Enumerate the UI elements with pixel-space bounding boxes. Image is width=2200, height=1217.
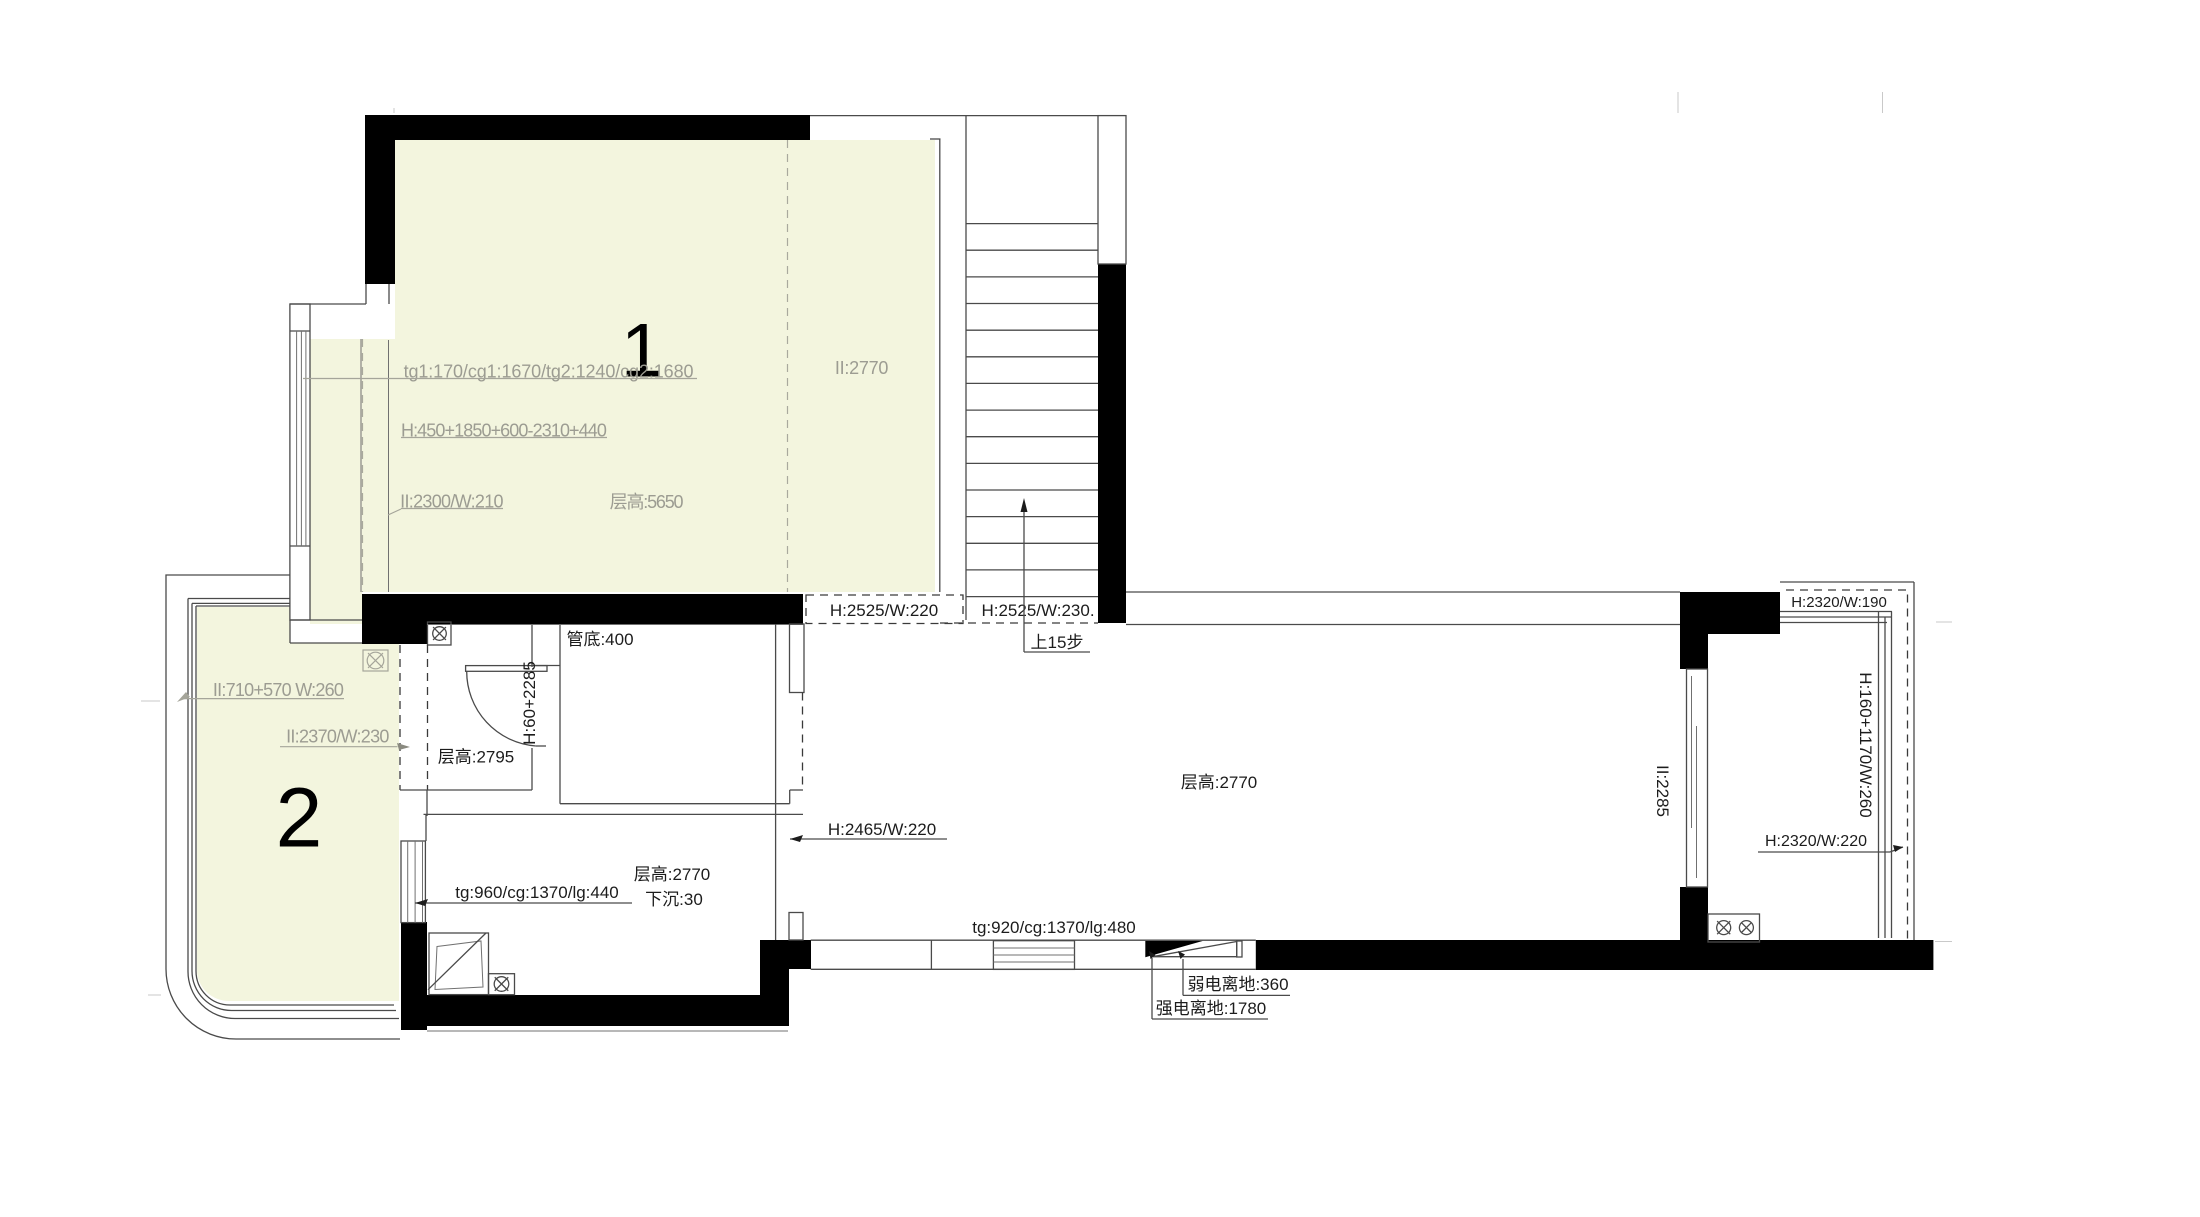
svg-text:II:2770: II:2770 xyxy=(835,358,889,378)
svg-text:H:60+2285: H:60+2285 xyxy=(520,661,539,745)
svg-text:层高:5650: 层高:5650 xyxy=(610,492,684,512)
svg-text:层高:2795: 层高:2795 xyxy=(438,748,515,767)
svg-text:H:2525/W:220: H:2525/W:220 xyxy=(830,601,938,620)
svg-text:H:2465/W:220: H:2465/W:220 xyxy=(828,820,936,839)
svg-text:2: 2 xyxy=(276,771,323,865)
svg-text:上15步: 上15步 xyxy=(1031,633,1084,652)
svg-text:层高:2770: 层高:2770 xyxy=(1181,773,1258,792)
svg-text:层高:2770: 层高:2770 xyxy=(634,865,711,884)
svg-text:H:2320/W:190: H:2320/W:190 xyxy=(1791,594,1887,611)
svg-text:II:2285: II:2285 xyxy=(1653,765,1672,817)
svg-text:II:2370/W:230: II:2370/W:230 xyxy=(286,727,389,747)
svg-text:tg:920/cg:1370/lg:480: tg:920/cg:1370/lg:480 xyxy=(972,918,1136,937)
svg-text:强电离地:1780: 强电离地:1780 xyxy=(1156,999,1267,1018)
svg-text:H:2525/W:230.: H:2525/W:230. xyxy=(981,601,1094,620)
svg-text:II:710+570 W:260: II:710+570 W:260 xyxy=(213,680,344,700)
svg-text:tg:960/cg:1370/lg:440: tg:960/cg:1370/lg:440 xyxy=(455,883,619,902)
svg-text:H:2320/W:220: H:2320/W:220 xyxy=(1765,833,1867,850)
svg-text:H:160+1170/W:260: H:160+1170/W:260 xyxy=(1856,672,1875,817)
svg-text:弱电离地:360: 弱电离地:360 xyxy=(1187,975,1288,994)
svg-text:管底:400: 管底:400 xyxy=(566,630,633,649)
svg-text:下沉:30: 下沉:30 xyxy=(645,890,703,909)
